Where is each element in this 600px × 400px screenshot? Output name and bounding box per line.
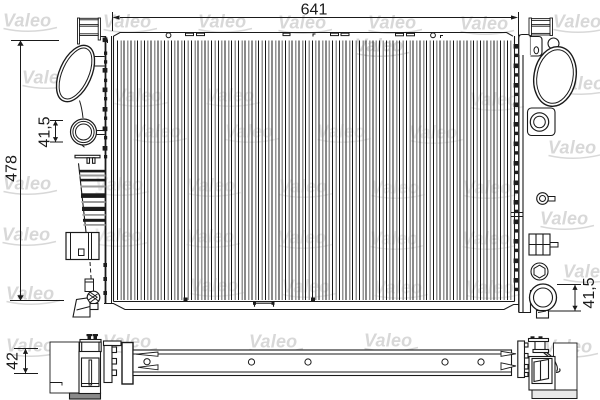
svg-text:41,5: 41,5 [37,116,54,147]
svg-text:41,5: 41,5 [581,277,598,308]
svg-text:42: 42 [5,352,22,370]
svg-text:478: 478 [4,155,21,182]
svg-text:641: 641 [301,2,328,19]
